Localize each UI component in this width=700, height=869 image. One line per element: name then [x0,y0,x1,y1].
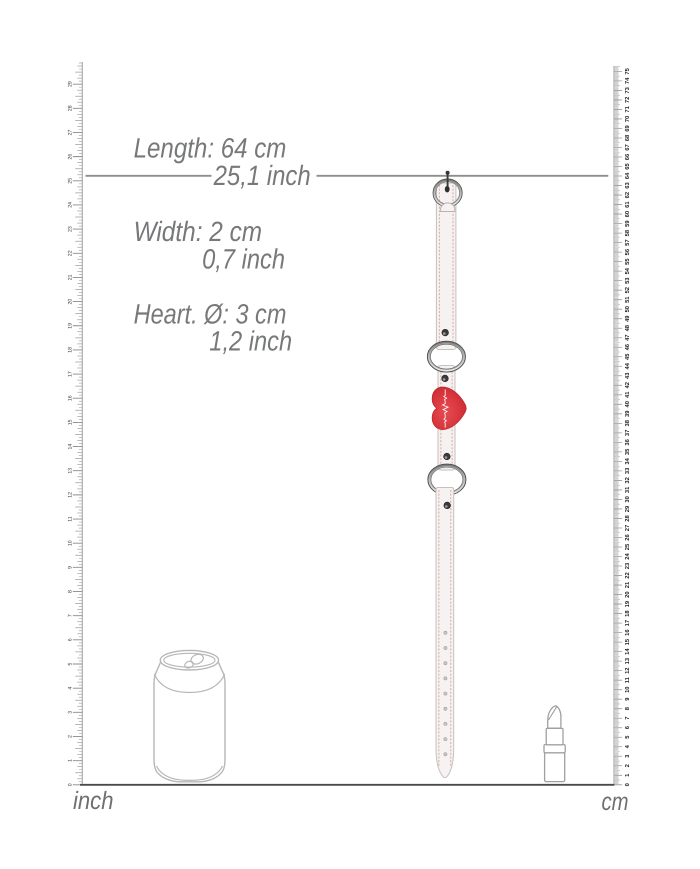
svg-text:61: 61 [624,201,631,208]
svg-text:23: 23 [67,226,73,232]
svg-text:23: 23 [624,562,631,569]
svg-text:inch: inch [73,787,114,815]
svg-text:68: 68 [624,134,631,141]
svg-text:6: 6 [67,638,73,641]
svg-text:16: 16 [624,629,631,636]
svg-text:33: 33 [624,467,631,474]
svg-text:17: 17 [625,620,631,626]
svg-text:70: 70 [624,116,631,122]
svg-text:6: 6 [624,725,631,729]
svg-text:2: 2 [624,764,631,767]
svg-text:9: 9 [624,697,631,701]
svg-text:10: 10 [624,686,631,692]
svg-text:16: 16 [67,395,73,401]
svg-text:32: 32 [624,477,631,483]
svg-text:1: 1 [67,759,73,762]
svg-text:2: 2 [67,735,73,738]
svg-text:15: 15 [67,419,73,425]
svg-text:3: 3 [67,711,73,714]
svg-text:13: 13 [624,657,631,664]
svg-text:60: 60 [624,211,631,217]
svg-text:25,1 inch: 25,1 inch [213,160,311,191]
svg-text:8: 8 [67,590,73,593]
svg-text:72: 72 [624,97,631,103]
svg-text:66: 66 [624,153,631,160]
svg-text:75: 75 [625,67,631,74]
svg-text:55: 55 [625,258,631,265]
svg-text:7: 7 [625,717,631,720]
svg-text:9: 9 [67,566,73,569]
svg-text:20: 20 [67,299,73,305]
svg-text:40: 40 [624,401,631,407]
svg-text:49: 49 [624,315,631,322]
svg-text:24: 24 [624,553,631,560]
svg-text:17: 17 [67,371,73,377]
svg-text:67: 67 [624,144,631,150]
svg-text:57: 57 [625,239,631,245]
svg-text:22: 22 [67,250,73,256]
svg-text:35: 35 [624,448,631,455]
svg-text:3: 3 [624,754,631,758]
svg-text:50: 50 [624,306,631,312]
svg-text:63: 63 [624,182,631,189]
svg-text:12: 12 [624,667,631,673]
svg-text:31: 31 [624,486,631,493]
svg-text:29: 29 [624,505,631,512]
svg-text:15: 15 [625,638,631,645]
svg-text:4: 4 [67,687,73,690]
svg-text:54: 54 [625,267,631,274]
svg-text:27: 27 [67,130,73,136]
svg-text:14: 14 [67,444,73,450]
svg-text:30: 30 [624,496,631,502]
svg-text:24: 24 [67,202,73,208]
svg-text:0: 0 [624,783,631,786]
svg-text:52: 52 [624,287,631,293]
svg-text:59: 59 [624,220,631,227]
svg-text:25: 25 [624,543,631,550]
svg-text:73: 73 [624,86,631,93]
svg-text:34: 34 [624,457,631,464]
svg-text:65: 65 [624,163,631,170]
svg-text:74: 74 [625,77,631,84]
svg-text:45: 45 [625,353,631,360]
svg-text:26: 26 [624,534,631,541]
svg-text:71: 71 [625,105,631,112]
svg-text:18: 18 [624,610,631,617]
svg-text:44: 44 [625,362,631,369]
svg-text:62: 62 [624,192,631,198]
svg-text:51: 51 [625,296,631,303]
svg-text:19: 19 [67,323,73,329]
svg-text:69: 69 [624,125,631,132]
svg-text:1: 1 [625,773,631,777]
svg-text:14: 14 [625,648,631,655]
svg-text:39: 39 [624,410,631,417]
svg-text:Width: 2 cm: Width: 2 cm [134,216,263,247]
svg-text:22: 22 [624,572,631,578]
svg-text:25: 25 [67,178,73,184]
svg-text:8: 8 [624,706,631,710]
svg-text:42: 42 [624,382,631,388]
svg-text:47: 47 [625,334,631,340]
svg-text:10: 10 [67,540,73,546]
svg-text:cm: cm [602,788,629,816]
svg-text:48: 48 [624,324,631,331]
svg-text:27: 27 [624,525,631,531]
svg-text:53: 53 [624,277,631,284]
svg-text:21: 21 [67,274,73,280]
svg-text:37: 37 [624,430,631,436]
svg-text:64: 64 [624,172,631,179]
svg-text:29: 29 [67,81,73,87]
svg-text:7: 7 [67,614,73,617]
svg-text:28: 28 [624,515,631,522]
svg-text:38: 38 [624,419,631,426]
svg-text:12: 12 [67,492,73,498]
svg-text:58: 58 [624,229,631,236]
svg-text:21: 21 [624,581,631,588]
svg-text:43: 43 [624,372,631,379]
svg-text:13: 13 [67,468,73,474]
svg-text:18: 18 [67,347,73,353]
svg-text:0,7 inch: 0,7 inch [202,244,285,275]
svg-text:11: 11 [67,516,73,521]
svg-text:46: 46 [624,343,631,350]
svg-text:56: 56 [624,248,631,255]
svg-text:Length: 64 cm: Length: 64 cm [134,132,287,163]
svg-text:0: 0 [67,783,73,786]
svg-text:36: 36 [624,438,631,445]
svg-text:19: 19 [624,600,631,607]
svg-text:41: 41 [625,391,631,398]
svg-text:26: 26 [67,154,73,160]
svg-text:28: 28 [67,105,73,111]
svg-text:5: 5 [67,662,73,665]
svg-text:1,2 inch: 1,2 inch [209,326,292,357]
svg-text:20: 20 [624,591,631,597]
svg-text:11: 11 [625,676,631,683]
svg-text:4: 4 [625,744,631,748]
svg-text:5: 5 [625,735,631,739]
